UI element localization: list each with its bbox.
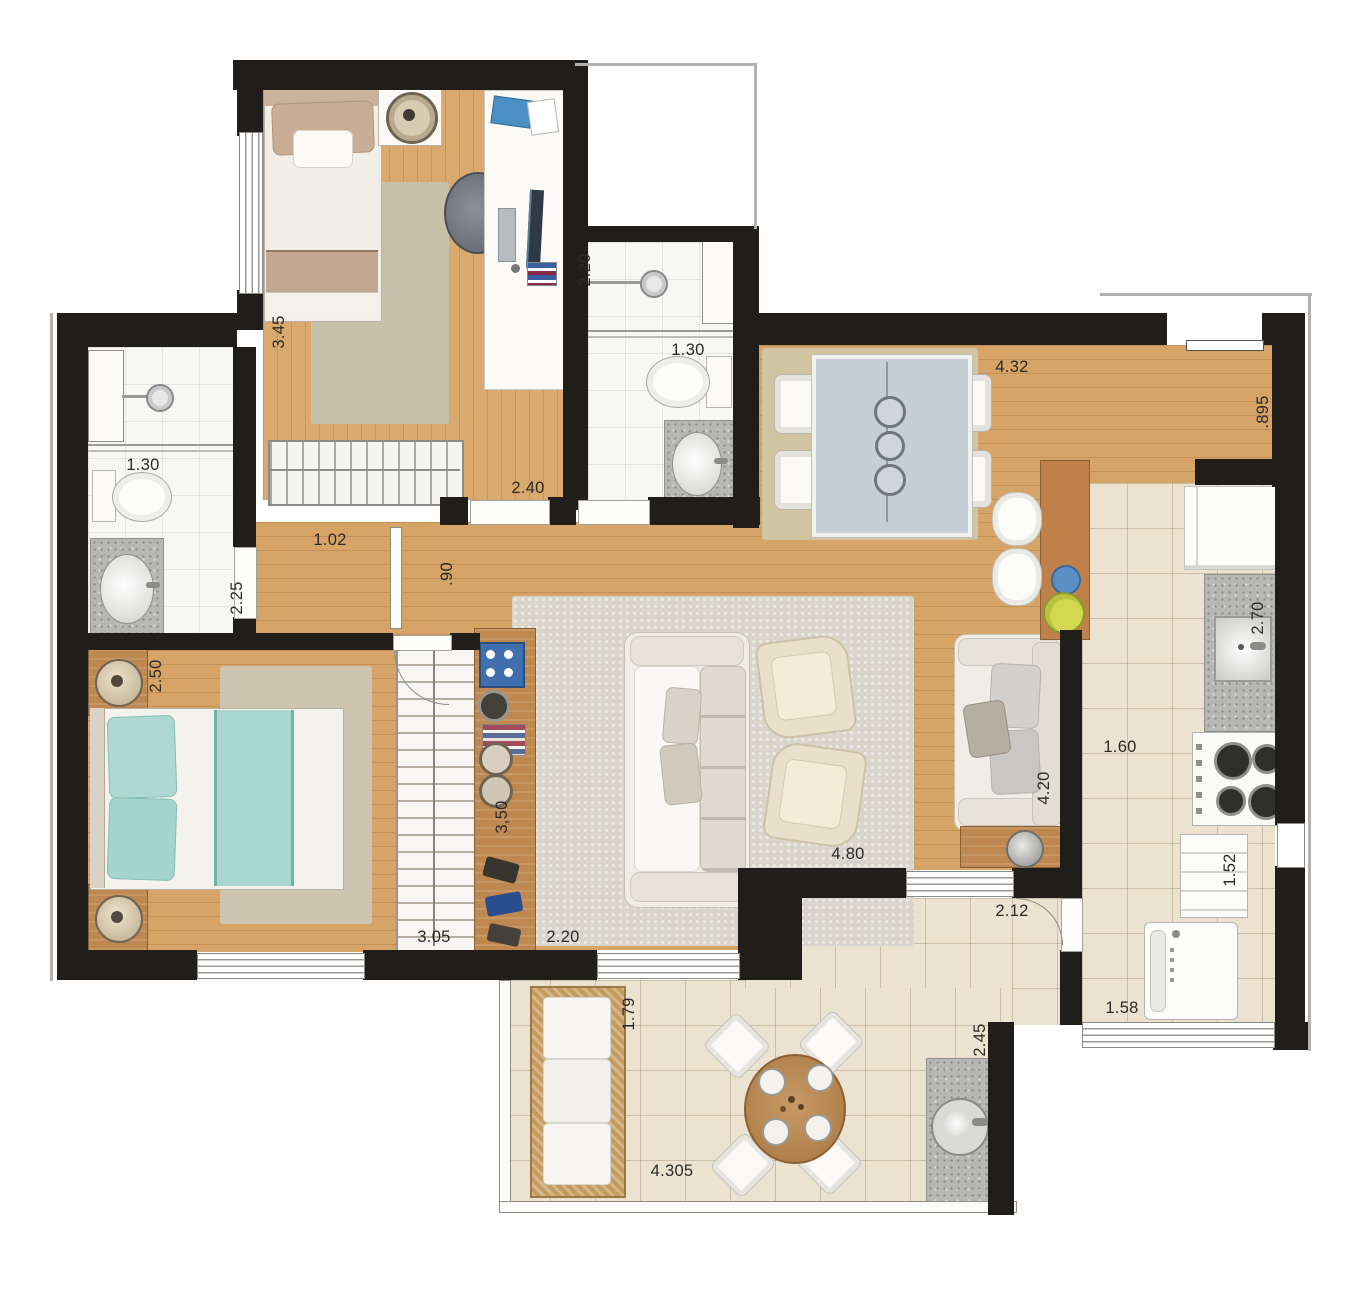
bathroom2-door-opening — [578, 500, 650, 525]
duct-niche-top — [702, 238, 735, 324]
wall — [738, 868, 802, 980]
outdoor-sofa-cushion-2 — [543, 1059, 611, 1123]
wall — [1060, 873, 1082, 898]
washing-machine-door — [1150, 930, 1166, 1012]
mouse — [511, 264, 520, 273]
wall — [648, 497, 760, 525]
wall — [237, 60, 263, 136]
plate-2 — [806, 1064, 834, 1092]
washing-machine-panel — [1170, 948, 1174, 988]
dimension-label: 1.02 — [313, 532, 346, 549]
sofa-main-armrest-bottom — [630, 872, 744, 902]
wall — [363, 950, 597, 980]
living-balcony-window — [906, 871, 1014, 897]
vase — [1006, 830, 1044, 868]
burner-3 — [1216, 786, 1246, 816]
blue-bowl — [1051, 565, 1081, 595]
kitchen-faucet-icon — [1250, 642, 1266, 650]
dimension-label: 3.05 — [417, 929, 450, 946]
toilet2-bowl — [646, 356, 710, 408]
wall — [1012, 868, 1064, 898]
outdoor-sofa-cushion-1 — [543, 997, 611, 1059]
balcony-railing-left — [499, 980, 511, 1213]
plate-4 — [804, 1114, 832, 1142]
entrance-door-leaf — [1186, 340, 1264, 351]
single-bed-pillow-white — [293, 130, 353, 168]
wall — [733, 226, 759, 528]
burner-1 — [1214, 742, 1252, 780]
slab-outline — [1308, 293, 1311, 1051]
lamp-bottom-center — [111, 911, 123, 923]
dimension-label: 2.25 — [229, 581, 246, 614]
shower1-head-icon — [146, 384, 174, 412]
wall — [745, 313, 1167, 345]
wall — [1060, 950, 1082, 1025]
entrance-opening — [1167, 316, 1262, 342]
fridge-door-line — [1196, 487, 1198, 567]
armchair-2-seat — [778, 758, 848, 830]
console-dot-3 — [486, 668, 495, 677]
balcony-railing-bottom — [499, 1201, 1017, 1213]
balcony-sink — [944, 1111, 972, 1139]
kitchen-balcony-door-opening — [1061, 898, 1083, 952]
woven-bowl-center — [403, 109, 415, 121]
dimension-label: 2.70 — [1250, 601, 1267, 634]
dimension-label: 2.40 — [511, 480, 544, 497]
fridge — [1184, 486, 1280, 570]
shower2-glass — [588, 330, 735, 332]
dimension-label: .895 — [1255, 395, 1272, 428]
teal-runner — [214, 710, 294, 886]
slatted-rack-rail — [268, 469, 460, 471]
dimension-label: 2.45 — [972, 1023, 989, 1056]
lamp-top-center — [111, 675, 123, 687]
table-scatter-1 — [788, 1096, 795, 1103]
dimension-label: 4.305 — [651, 1163, 694, 1180]
sofa-main-armrest-top — [630, 636, 744, 666]
slab-outline — [754, 63, 757, 229]
service-window — [1082, 1022, 1275, 1048]
bathroom1-sink — [100, 554, 154, 624]
table-scatter-2 — [798, 1104, 804, 1110]
bathroom1-faucet-icon — [146, 582, 160, 588]
teal-pillow-2 — [107, 797, 178, 881]
wall — [57, 313, 88, 660]
bar-stool-2 — [992, 548, 1042, 606]
wall — [450, 633, 480, 650]
kitchen-side-opening — [1277, 823, 1305, 868]
living-balcony-slider — [597, 953, 740, 979]
dimension-label: 3,50 — [494, 800, 511, 833]
wall — [57, 633, 393, 650]
centerpiece-2 — [875, 431, 905, 461]
bathroom2-sink — [672, 432, 722, 496]
dimension-label: 1.30 — [671, 342, 704, 359]
plate-3 — [762, 1118, 790, 1146]
table-scatter-3 — [780, 1106, 786, 1112]
desk-books — [527, 262, 557, 286]
plate-1 — [758, 1068, 786, 1096]
balcony-faucet-icon — [972, 1118, 988, 1126]
slab-outline — [50, 313, 53, 981]
slab-outline — [1100, 293, 1312, 296]
dimension-label: 1.79 — [621, 997, 638, 1030]
wall — [233, 60, 575, 90]
bedroom2-door-opening — [393, 635, 452, 651]
wall — [440, 497, 468, 525]
dimension-label: 2.12 — [995, 903, 1028, 920]
decor-bowl-1 — [479, 742, 513, 776]
bedroom2-window — [197, 953, 365, 979]
washing-machine-knob — [1172, 930, 1180, 938]
wall — [1275, 459, 1305, 825]
dimension-label: 1.58 — [1105, 1000, 1138, 1017]
console-dot-2 — [504, 650, 513, 659]
shower1-glass — [88, 444, 233, 446]
centerpiece-1 — [874, 396, 906, 428]
shower2-head-icon — [640, 270, 668, 298]
hall-partition — [390, 527, 402, 629]
dimension-label: .90 — [439, 562, 456, 586]
desk — [484, 90, 566, 390]
teal-pillow-1 — [107, 715, 178, 799]
outdoor-sofa-cushion-3 — [543, 1123, 611, 1185]
dimension-label: 2.50 — [148, 659, 165, 692]
decor-disc — [478, 690, 510, 722]
centerpiece-3 — [874, 464, 906, 496]
dimension-label: 1.60 — [1103, 739, 1136, 756]
duct-niche-left — [88, 350, 124, 442]
dimension-label: 3.45 — [271, 315, 288, 348]
slab-outline — [575, 63, 757, 66]
wall — [1273, 1022, 1308, 1050]
wall — [237, 290, 263, 330]
wall — [57, 950, 197, 980]
console-dot-4 — [504, 668, 513, 677]
dimension-label: 1.30 — [126, 457, 159, 474]
single-bed-blanket — [266, 250, 378, 294]
bar-stool-1 — [992, 492, 1042, 546]
wall — [563, 226, 735, 242]
bedroom1-window — [239, 132, 263, 294]
dimension-label: 2.20 — [546, 929, 579, 946]
wall — [1060, 630, 1082, 873]
armchair-1-seat — [770, 651, 837, 722]
dimension-label: 4.32 — [995, 359, 1028, 376]
floor-plan: 3.45 2.20 1.30 2.40 1.02 .90 1.30 2.25 2… — [0, 0, 1370, 1290]
bedroom1-door-opening — [470, 500, 550, 525]
dimension-label: 4.80 — [831, 846, 864, 863]
shower1-glass2 — [88, 450, 233, 452]
wall — [548, 497, 576, 525]
loveseat-pillow-gray — [962, 699, 1012, 759]
console-dot-1 — [486, 650, 495, 659]
keyboard — [498, 208, 516, 262]
dimension-label: 4.20 — [1036, 771, 1053, 804]
sofa-pillow-2 — [659, 742, 703, 806]
kitchen-drain — [1238, 644, 1244, 650]
stove-knobs — [1196, 744, 1202, 814]
fruit-bowl — [1043, 592, 1085, 634]
slatted-rack — [268, 440, 464, 506]
double-bed-headboard — [90, 708, 105, 888]
wall — [233, 347, 256, 547]
wall — [988, 1022, 1014, 1215]
shower2-glass2 — [588, 336, 735, 338]
wall — [1275, 866, 1305, 1028]
sofa-main-back-cushions — [700, 666, 746, 872]
game-console-icon — [479, 642, 525, 688]
toilet1-bowl — [112, 472, 172, 522]
desk-paper-white — [527, 98, 559, 136]
bathroom2-faucet-icon — [714, 458, 728, 464]
hall-floor — [256, 522, 462, 640]
wall — [800, 868, 906, 898]
wall — [57, 633, 88, 980]
dimension-label: 2.20 — [577, 253, 594, 286]
dimension-label: 1.52 — [1222, 853, 1239, 886]
sofa-pillow-1 — [662, 687, 703, 746]
